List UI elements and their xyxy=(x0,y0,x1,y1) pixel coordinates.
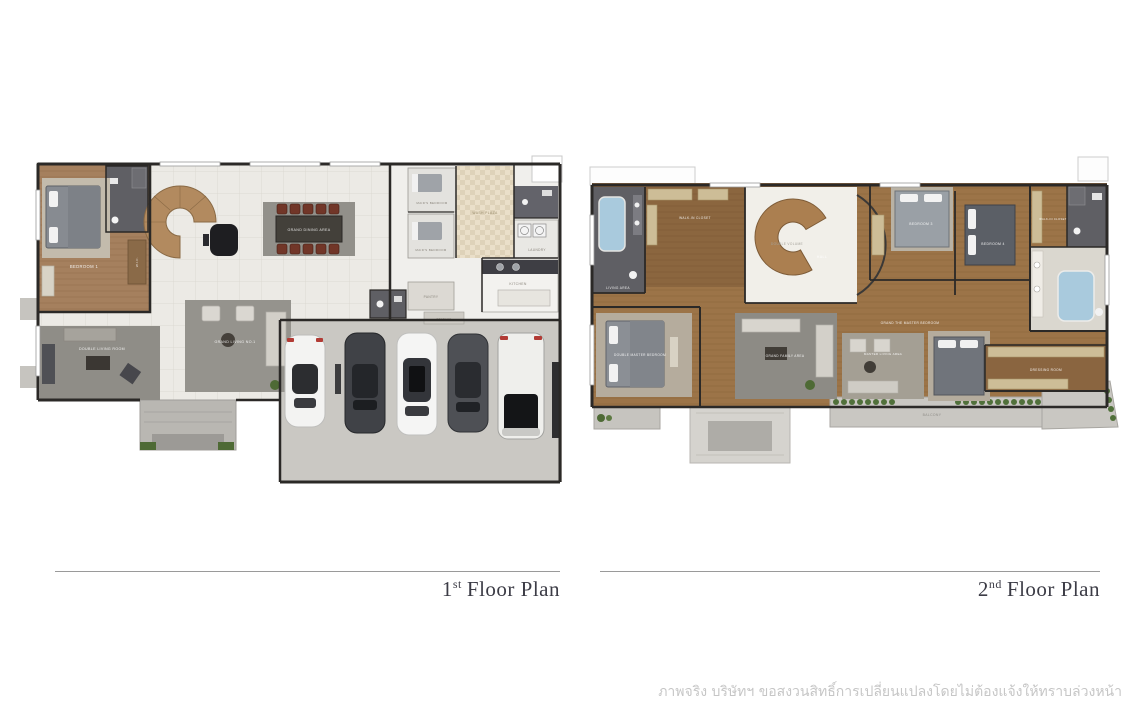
grand-living: GRAND LIVING NO.1 xyxy=(185,300,291,392)
first-floor-title-text: Floor Plan xyxy=(467,577,560,601)
second-floor-title: 2ndFloor Plan xyxy=(600,577,1100,602)
bathtub-icon xyxy=(1058,271,1094,321)
first-floor-plan-image: BEDROOM 1 W.I.C. GRAND DINING AREA MAID'… xyxy=(20,150,565,485)
master-bathroom-right xyxy=(1030,247,1107,331)
toilet-icon xyxy=(629,271,637,279)
car-white-sedan xyxy=(397,333,437,435)
double-master-bedroom: DOUBLE MASTER BEDROOM xyxy=(596,313,692,397)
dressing-room: DRESSING ROOM xyxy=(985,345,1107,391)
car-black-sedan xyxy=(345,333,385,433)
toilet-icon xyxy=(1095,308,1103,316)
balcony-left xyxy=(594,407,660,429)
entry-canopy xyxy=(690,407,790,463)
first-floor-title-ordinal: st xyxy=(453,577,462,591)
terrace xyxy=(140,400,236,450)
car-white-suv xyxy=(498,333,544,439)
balcony-long: BALCONY xyxy=(830,397,1042,427)
first-floor-title: 1stFloor Plan xyxy=(55,577,560,602)
divider-line-first-floor xyxy=(55,571,560,572)
second-floor-plan-image: BALCONY WALK-IN CLOSET DOUBLE VOLUME xyxy=(580,155,1120,485)
second-floor-title-text: Floor Plan xyxy=(1007,577,1100,601)
bedroom-1-suite: BEDROOM 1 W.I.C. xyxy=(38,164,150,312)
second-floor-title-number: 2 xyxy=(978,577,989,601)
grand-family-area: GRAND FAMILY AREA xyxy=(735,313,837,399)
walk-in-closet-left: WALK-IN CLOSET xyxy=(645,187,745,287)
car-gray-sedan xyxy=(448,334,488,432)
dining-area: GRAND DINING AREA xyxy=(263,202,355,256)
car-white-coupe xyxy=(285,335,325,427)
bathroom-top-right xyxy=(1067,185,1107,247)
master-bedroom xyxy=(928,331,990,401)
master-living-area: MASTER LIVING AREA xyxy=(842,333,924,399)
master-bathroom-left xyxy=(593,187,645,293)
double-living: DOUBLE LIVING ROOM xyxy=(40,326,160,400)
first-floor-title-number: 1 xyxy=(442,577,453,601)
second-floor-title-ordinal: nd xyxy=(989,577,1002,591)
divider-line-second-floor xyxy=(600,571,1100,572)
disclaimer-text: ภาพจริง บริษัทฯ ขอสงวนสิทธิ์การเปลี่ยนแป… xyxy=(658,681,1122,703)
grand-piano-icon xyxy=(210,224,238,256)
page: { "floor_plans": [ { "id": "first-floor"… xyxy=(0,0,1141,721)
bedroom-4: BEDROOM 4 xyxy=(965,205,1015,265)
bathtub-icon xyxy=(599,197,625,251)
